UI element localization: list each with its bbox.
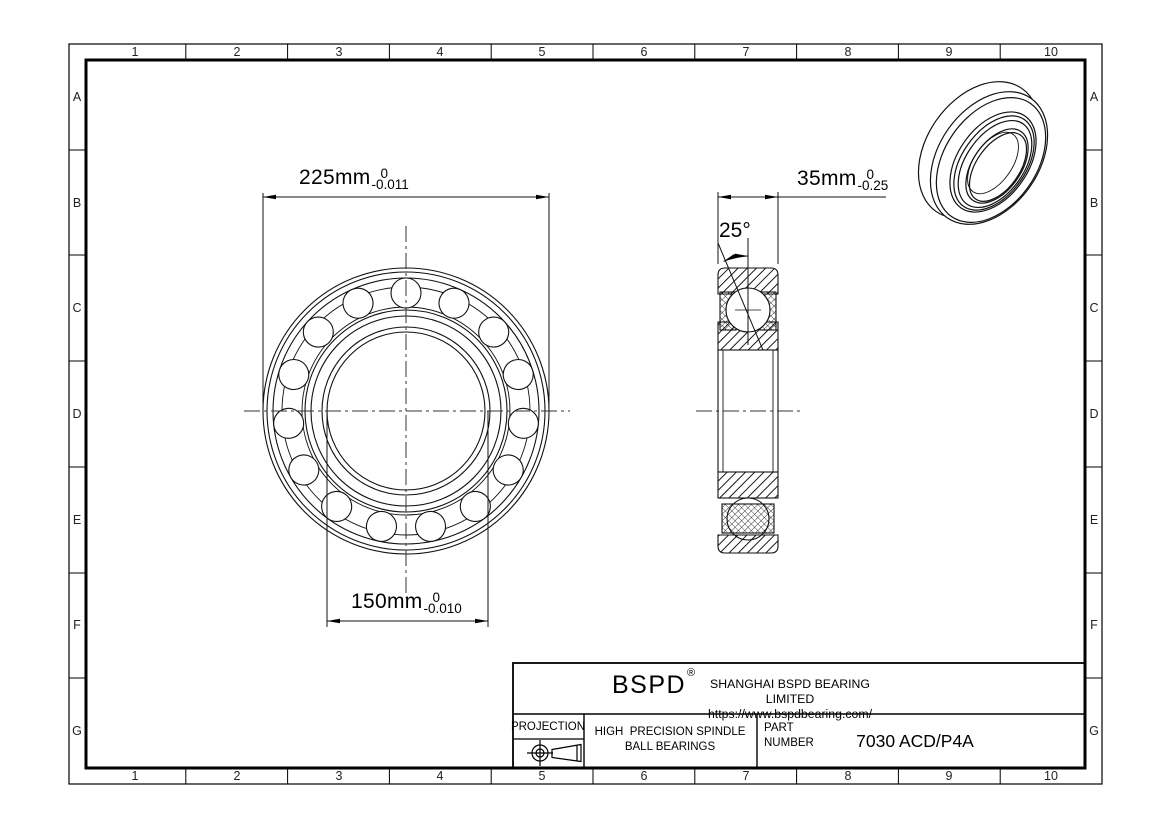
company-name: SHANGHAI BSPD BEARING LIMITED <box>687 677 893 707</box>
part-number-label-line2: NUMBER <box>764 737 814 749</box>
grid-col-bottom-6: 6 <box>641 769 648 783</box>
iso-view <box>893 59 1071 247</box>
dim-text-bore-diameter: 150mm0-0.010 <box>351 590 462 614</box>
grid-row-right-e: E <box>1090 513 1098 527</box>
company-info: SHANGHAI BSPD BEARING LIMITED https://ww… <box>687 677 893 722</box>
dim-value: 150mm <box>351 590 423 614</box>
dim-value: 35mm <box>797 167 857 191</box>
grid-row-right-g: G <box>1089 724 1099 738</box>
projection-symbol <box>527 740 581 766</box>
grid-row-left-c: C <box>72 301 81 315</box>
part-number-label-line1: PART <box>764 722 794 734</box>
dim-value: 225mm <box>299 166 371 190</box>
grid-col-top-7: 7 <box>743 45 750 59</box>
grid-col-top-10: 10 <box>1044 45 1058 59</box>
grid-row-right-d: D <box>1089 407 1098 421</box>
grid-col-bottom-10: 10 <box>1044 769 1058 783</box>
front-view <box>244 226 570 598</box>
contact-angle-label: 25° <box>719 219 751 243</box>
grid-col-bottom-3: 3 <box>336 769 343 783</box>
tolerance-lower: -0.010 <box>424 603 462 614</box>
product-title-line1: HIGH PRECISION SPINDLE <box>595 726 746 738</box>
company-logo: BSPD <box>612 671 686 700</box>
grid-col-bottom-5: 5 <box>539 769 546 783</box>
grid-row-right-c: C <box>1089 301 1098 315</box>
drawing-linework <box>0 0 1170 827</box>
dim-text-outer-diameter: 225mm0-0.011 <box>299 166 409 190</box>
drawing-sheet: 1 2 3 4 5 6 7 8 9 10 1 2 3 4 5 6 7 8 9 1… <box>0 0 1170 827</box>
grid-row-left-a: A <box>73 90 81 104</box>
grid-col-top-2: 2 <box>234 45 241 59</box>
grid-row-left-f: F <box>73 618 81 632</box>
grid-col-top-6: 6 <box>641 45 648 59</box>
grid-col-top-4: 4 <box>437 45 444 59</box>
tolerance-lower: -0.011 <box>372 179 409 190</box>
grid-col-top-8: 8 <box>845 45 852 59</box>
company-website: https://www.bspdbearing.com/ <box>687 707 893 722</box>
grid-col-bottom-8: 8 <box>845 769 852 783</box>
grid-col-top-1: 1 <box>132 45 139 59</box>
grid-col-bottom-4: 4 <box>437 769 444 783</box>
cage-section-bottom <box>722 504 774 533</box>
grid-row-left-d: D <box>72 407 81 421</box>
grid-col-top-3: 3 <box>336 45 343 59</box>
grid-col-bottom-1: 1 <box>132 769 139 783</box>
inner-ring-section-bottom <box>718 472 778 498</box>
grid-row-left-b: B <box>73 196 81 210</box>
tolerance-lower: -0.25 <box>858 180 889 191</box>
projection-label: PROJECTION <box>511 721 585 733</box>
grid-row-right-f: F <box>1090 618 1098 632</box>
grid-col-bottom-9: 9 <box>946 769 953 783</box>
grid-row-right-b: B <box>1090 196 1098 210</box>
grid-col-top-9: 9 <box>946 45 953 59</box>
section-view <box>696 268 802 553</box>
dim-text-width: 35mm0-0.25 <box>797 167 888 191</box>
grid-col-bottom-7: 7 <box>743 769 750 783</box>
grid-col-bottom-2: 2 <box>234 769 241 783</box>
dimension-lines <box>263 192 886 627</box>
grid-column-ticks <box>186 44 1000 784</box>
grid-col-top-5: 5 <box>539 45 546 59</box>
grid-row-left-e: E <box>73 513 81 527</box>
outer-ring-section-bottom <box>718 535 778 553</box>
product-title-line2: BALL BEARINGS <box>625 741 715 753</box>
grid-row-ticks <box>69 150 1102 678</box>
grid-row-right-a: A <box>1090 90 1098 104</box>
grid-row-left-g: G <box>72 724 82 738</box>
part-number-value: 7030 ACD/P4A <box>856 731 974 752</box>
